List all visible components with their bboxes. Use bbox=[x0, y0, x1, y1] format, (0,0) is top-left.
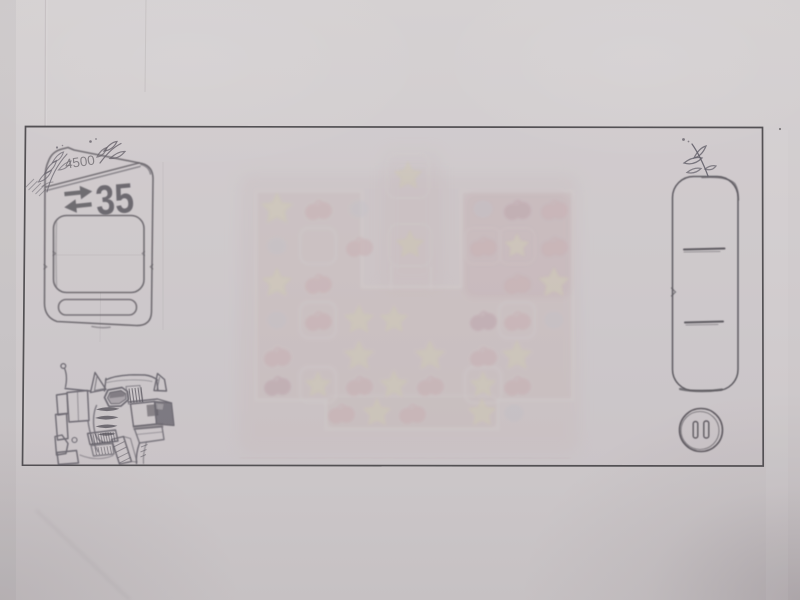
svg-text:35: 35 bbox=[94, 175, 136, 225]
